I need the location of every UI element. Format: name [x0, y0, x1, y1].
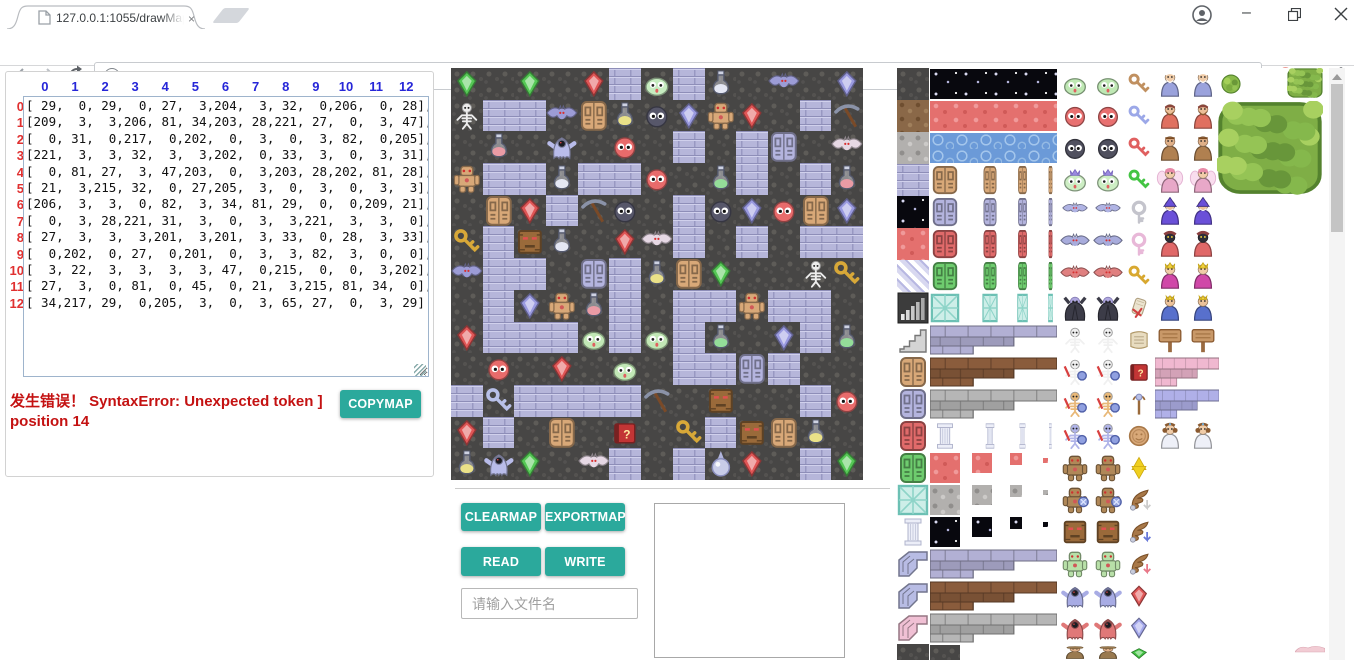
map-tile-golem[interactable] — [451, 163, 483, 195]
map-tile-stone-face[interactable] — [705, 385, 737, 417]
map-tile-dark-ground[interactable] — [546, 258, 578, 290]
tileset-sprite-blob[interactable] — [1093, 133, 1123, 163]
tileset-sprite-bat[interactable] — [1062, 199, 1088, 221]
tileset-sprite-skeleton[interactable] — [1060, 325, 1090, 355]
map-tile-brick-wall[interactable] — [705, 290, 737, 322]
tileset-sprite-slimecrown[interactable] — [1093, 165, 1123, 195]
map-tile-green-gem[interactable] — [514, 68, 546, 100]
tileset-sprite-dark[interactable] — [930, 645, 960, 660]
exportmap-button[interactable]: EXPORTMAP — [545, 503, 625, 531]
tileset-sprite-key[interactable] — [1126, 263, 1152, 289]
map-tile-dark-ground[interactable] — [578, 353, 610, 385]
tileset-sprite-skelarm[interactable] — [1060, 389, 1090, 419]
map-tile-purple-bat[interactable] — [768, 68, 800, 100]
map-tile-dark-ground[interactable] — [514, 417, 546, 449]
tileset-sprite-dwarf[interactable] — [1155, 101, 1185, 131]
map-tile-purple-gem[interactable] — [831, 195, 863, 227]
tileset-sprite-hatguy[interactable] — [1093, 645, 1123, 660]
tileset-sprite-diag[interactable] — [897, 260, 929, 292]
map-tile-wooden-door[interactable] — [483, 195, 515, 227]
tileset-sprite-redcave[interactable] — [930, 101, 1057, 131]
map-tile-wooden-door[interactable] — [768, 417, 800, 449]
map-tile-red-gem[interactable] — [736, 448, 768, 480]
map-tile-green-gem[interactable] — [705, 258, 737, 290]
tileset-sprite-door[interactable] — [930, 229, 960, 259]
tileset-sprite-bat[interactable] — [1060, 261, 1090, 289]
tileset-sprite-gstone[interactable] — [897, 132, 929, 164]
tileset-sprite-starry[interactable] — [1010, 517, 1022, 529]
copymap-button[interactable]: COPYMAP — [340, 390, 421, 418]
map-tile-dark-ground[interactable] — [768, 448, 800, 480]
tab-close-icon[interactable]: × — [188, 12, 195, 26]
map-tile-dark-ground[interactable] — [736, 385, 768, 417]
map-tile-brick-wall[interactable] — [483, 290, 515, 322]
map-tile-dark-ground[interactable] — [514, 353, 546, 385]
map-tile-dark-ground[interactable] — [768, 100, 800, 132]
tileset-sprite-fighter[interactable] — [1155, 133, 1185, 163]
tileset-sprite-gem[interactable] — [1126, 583, 1152, 609]
tileset-sprite-sign[interactable] — [1188, 325, 1218, 355]
map-tile-purple-gem[interactable] — [673, 100, 705, 132]
tileset-sprite-door[interactable] — [897, 356, 929, 388]
map-tile-green-slime[interactable] — [578, 322, 610, 354]
map-tile-brick-wall[interactable] — [800, 163, 832, 195]
tileset-sprite-brick[interactable] — [897, 164, 929, 196]
tileset-sprite-sign[interactable] — [1155, 325, 1185, 355]
tileset-sprite-starry[interactable] — [972, 517, 992, 537]
filename-input[interactable] — [461, 588, 638, 619]
tileset-sprite-wingwall[interactable] — [897, 548, 929, 580]
tileset-sprite-ghost[interactable] — [1093, 613, 1123, 643]
tileset-sprite-treebig[interactable] — [1217, 101, 1323, 195]
map-tile-red-blob[interactable] — [641, 163, 673, 195]
tileset-sprite-dirt[interactable] — [897, 100, 929, 132]
map-tile-brick-wall[interactable] — [483, 226, 515, 258]
map-tile-gold-key[interactable] — [831, 258, 863, 290]
tileset-sprite-golem[interactable] — [1093, 453, 1123, 483]
map-tile-magic-orb[interactable] — [705, 448, 737, 480]
tileset-sprite-prince[interactable] — [1188, 293, 1218, 323]
tileset-sprite-door[interactable] — [1048, 165, 1053, 195]
tileset-sprite-golem[interactable] — [1093, 549, 1123, 579]
map-tile-purple-gem[interactable] — [736, 195, 768, 227]
tileset-sprite-keyring[interactable] — [1126, 231, 1152, 257]
tileset-sprite-redcave[interactable] — [1043, 458, 1048, 463]
tileset-sprite-face[interactable] — [1093, 517, 1123, 547]
tileset-sprite-princess[interactable] — [1188, 421, 1218, 451]
tileset-sprite-doorice[interactable] — [930, 293, 960, 323]
tileset-sprite-fighter[interactable] — [1188, 133, 1218, 163]
map-tile-green-gem[interactable] — [451, 68, 483, 100]
map-tile-skeleton[interactable] — [800, 258, 832, 290]
read-button[interactable]: READ — [461, 547, 541, 576]
textarea-resize-grip[interactable] — [414, 364, 426, 376]
tileset-sprite-fairy[interactable] — [1155, 165, 1185, 195]
tileset-sprite-bars[interactable] — [897, 292, 929, 324]
tileset-sprite-door[interactable] — [930, 197, 960, 227]
tileset-sprite-redcave[interactable] — [930, 453, 960, 483]
tileset-sprite-princess[interactable] — [1155, 421, 1185, 451]
tileset-sprite-gem[interactable] — [1126, 615, 1152, 641]
map-tile-red-gem[interactable] — [451, 322, 483, 354]
map-tile-pink-bat[interactable] — [641, 226, 673, 258]
tileset-sprite-wall[interactable] — [930, 549, 1057, 579]
tileset-sprite-pillar[interactable] — [1048, 421, 1053, 451]
close-icon[interactable] — [1334, 7, 1348, 21]
tileset-sprite-door[interactable] — [897, 420, 929, 452]
tileset-sprite-golem[interactable] — [1060, 549, 1090, 579]
map-tile-dark-ground[interactable] — [768, 385, 800, 417]
tileset-sprite-door[interactable] — [982, 197, 998, 227]
map-tile-gold-key[interactable] — [673, 417, 705, 449]
map-tile-brick-wall[interactable] — [514, 385, 546, 417]
tileset-sprite-hatguy[interactable] — [1060, 645, 1090, 660]
scroll-thumb[interactable] — [1331, 84, 1343, 232]
tileset-sprite-pillar[interactable] — [930, 421, 960, 451]
tileset-sprite-gstone[interactable] — [972, 485, 992, 505]
tileset-sprite-wall[interactable] — [1155, 357, 1219, 387]
map-tile-stone-face[interactable] — [736, 417, 768, 449]
map-tile-yellow-potion[interactable] — [800, 417, 832, 449]
map-tile-purple-gem[interactable] — [831, 68, 863, 100]
tileset-sprite-redcave[interactable] — [897, 228, 929, 260]
map-tile-brick-wall[interactable] — [609, 385, 641, 417]
map-tile-dark-ground[interactable] — [546, 68, 578, 100]
map-tile-brick-wall[interactable] — [673, 290, 705, 322]
map-tile-dark-ground[interactable] — [578, 131, 610, 163]
tileset-sprite-wingwall[interactable] — [897, 580, 929, 612]
tileset-sprite-door[interactable] — [1048, 261, 1053, 291]
map-tile-brick-wall[interactable] — [705, 353, 737, 385]
map-tile-dark-ground[interactable] — [578, 417, 610, 449]
map-tile-dark-ground[interactable] — [451, 195, 483, 227]
map-tile-green-potion[interactable] — [705, 322, 737, 354]
map-tile-silver-door[interactable] — [578, 258, 610, 290]
map-tile-brick-wall[interactable] — [800, 100, 832, 132]
map-tile-brick-wall[interactable] — [768, 290, 800, 322]
map-tile-green-potion[interactable] — [831, 322, 863, 354]
map-tile-brick-wall[interactable] — [609, 448, 641, 480]
tileset-sprite-key[interactable] — [1126, 71, 1152, 97]
tileset-sprite-skelarm[interactable] — [1093, 389, 1123, 419]
map-tile-purple-gem[interactable] — [514, 290, 546, 322]
map-tile-brick-wall[interactable] — [673, 226, 705, 258]
map-tile-dark-ground[interactable] — [546, 448, 578, 480]
tileset-sprite-doorice[interactable] — [1017, 293, 1028, 323]
map-tile-dark-ground[interactable] — [705, 226, 737, 258]
tileset-sprite-wing[interactable] — [1126, 519, 1152, 545]
tileset-sprite-starry[interactable] — [930, 517, 960, 547]
tileset-sprite-gstone[interactable] — [1010, 485, 1022, 497]
map-tile-golem[interactable] — [705, 100, 737, 132]
tileset-sprite-water[interactable] — [930, 133, 1057, 163]
tileset-sprite-elder[interactable] — [1188, 69, 1218, 99]
map-tile-red-blob[interactable] — [609, 131, 641, 163]
tileset-sprite-doorice[interactable] — [982, 293, 998, 323]
map-tile-dark-ground[interactable] — [451, 353, 483, 385]
map-tile-dark-blob[interactable] — [705, 195, 737, 227]
map-tile-yellow-potion[interactable] — [641, 258, 673, 290]
tileset-sprite-wing[interactable] — [1126, 551, 1152, 577]
tileset-sprite-door[interactable] — [930, 165, 960, 195]
map-tile-brick-wall[interactable] — [736, 131, 768, 163]
map-tile-brick-wall[interactable] — [768, 353, 800, 385]
map-tile-brick-wall[interactable] — [514, 163, 546, 195]
map-tile-brick-wall[interactable] — [800, 385, 832, 417]
map-tile-skeleton[interactable] — [451, 100, 483, 132]
tileset-sprite-priest[interactable] — [1188, 229, 1218, 259]
map-tile-dark-ground[interactable] — [768, 226, 800, 258]
map-tile-question-book[interactable]: ? — [609, 417, 641, 449]
map-tile-dark-ground[interactable] — [483, 68, 515, 100]
map-tile-dark-ground[interactable] — [673, 385, 705, 417]
tileset-sprite-wall[interactable] — [1155, 389, 1219, 419]
tileset-sprite-golemarm[interactable] — [1060, 485, 1090, 515]
map-tile-brick-wall[interactable] — [483, 417, 515, 449]
tileset-sprite-skeleton[interactable] — [1093, 325, 1123, 355]
map-tile-green-slime[interactable] — [609, 353, 641, 385]
tileset-sprite-stairs[interactable] — [897, 324, 929, 356]
map-tile-brick-wall[interactable] — [578, 385, 610, 417]
tileset-sprite-pillar[interactable] — [897, 516, 929, 548]
map-tile-brick-wall[interactable] — [800, 226, 832, 258]
map-tile-dark-ground[interactable] — [800, 353, 832, 385]
tileset-sprite-coin[interactable] — [1126, 423, 1152, 449]
map-tile-brick-wall[interactable] — [483, 100, 515, 132]
map-tile-brick-wall[interactable] — [736, 226, 768, 258]
tileset-sprite-treebig[interactable] — [1287, 68, 1323, 98]
map-tile-green-gem[interactable] — [831, 448, 863, 480]
tileset-sprite-key[interactable] — [1126, 135, 1152, 161]
map-tile-brick-wall[interactable] — [609, 290, 641, 322]
map-tile-purple-gem[interactable] — [768, 322, 800, 354]
scroll-up-arrow[interactable] — [1332, 74, 1342, 80]
map-tile-dark-blob[interactable] — [609, 195, 641, 227]
tileset-sprite-scroll[interactable] — [1126, 295, 1152, 321]
tileset-sprite-ghost[interactable] — [1060, 613, 1090, 643]
tileset-sprite-scrollopen[interactable] — [1126, 327, 1152, 353]
browser-tab[interactable]: 127.0.0.1:1055/drawMapGUI.html × — [6, 5, 206, 29]
tileset-sprite-elder[interactable] — [1155, 69, 1185, 99]
map-tile-pickaxe[interactable] — [641, 385, 673, 417]
tileset-sprite-wizard[interactable] — [1155, 197, 1185, 227]
map-tile-ghost[interactable] — [546, 131, 578, 163]
tileset-sprite-door[interactable] — [1017, 229, 1028, 259]
tileset-sprite-wizard[interactable] — [1188, 197, 1218, 227]
map-tile-red-potion[interactable] — [831, 163, 863, 195]
map-tile-brick-wall[interactable] — [673, 322, 705, 354]
map-tile-silver-door[interactable] — [768, 131, 800, 163]
map-tile-dark-ground[interactable] — [451, 131, 483, 163]
map-tile-wooden-door[interactable] — [578, 100, 610, 132]
map-tile-silver-key[interactable] — [483, 385, 515, 417]
map-tile-dark-ground[interactable] — [673, 163, 705, 195]
map-tile-brick-wall[interactable] — [609, 258, 641, 290]
map-tile-brick-wall[interactable] — [546, 195, 578, 227]
map-tile-dark-ground[interactable] — [641, 417, 673, 449]
map-tile-dark-ground[interactable] — [768, 163, 800, 195]
map-tile-dark-ground[interactable] — [800, 131, 832, 163]
map-tile-red-potion[interactable] — [578, 290, 610, 322]
tileset-sprite-ghost[interactable] — [1060, 581, 1090, 611]
tileset-sprite-door[interactable] — [982, 229, 998, 259]
map-tile-red-gem[interactable] — [514, 195, 546, 227]
tileset-sprite-doorice[interactable] — [897, 484, 929, 516]
write-button[interactable]: WRITE — [545, 547, 625, 576]
map-tile-brick-wall[interactable] — [673, 448, 705, 480]
map-tile-brick-wall[interactable] — [578, 163, 610, 195]
map-tile-yellow-potion[interactable] — [451, 448, 483, 480]
map-tile-dark-ground[interactable] — [641, 448, 673, 480]
tileset-sprite-dark[interactable] — [897, 644, 929, 660]
tileset-sprite-vampire[interactable] — [1093, 293, 1123, 323]
tileset-sprite-wall[interactable] — [930, 389, 1057, 419]
tileset-sprite-golem[interactable] — [1060, 453, 1090, 483]
tileset-sprite-door[interactable] — [1017, 197, 1028, 227]
map-tile-dark-ground[interactable] — [831, 417, 863, 449]
tileset-sprite-door[interactable] — [897, 452, 929, 484]
map-tile-green-slime[interactable] — [641, 322, 673, 354]
map-tile-brick-wall[interactable] — [546, 385, 578, 417]
minimize-icon[interactable]: – — [1242, 4, 1251, 22]
tileset-sprite-starry[interactable] — [897, 196, 929, 228]
tileset-sprite-key[interactable] — [1126, 103, 1152, 129]
tileset-sprite-wall[interactable] — [930, 581, 1057, 611]
tileset-sprite-skelarm[interactable] — [1093, 421, 1123, 451]
map-tile-silver-potion[interactable] — [546, 163, 578, 195]
map-tile-dark-blob[interactable] — [641, 100, 673, 132]
map-tile-purple-bat[interactable] — [451, 258, 483, 290]
map-tile-wooden-door[interactable] — [546, 417, 578, 449]
tileset-sprite-doorice[interactable] — [1048, 293, 1053, 323]
map-tile-brick-wall[interactable] — [514, 100, 546, 132]
tileset-sprite-door[interactable] — [930, 261, 960, 291]
map-tile-brick-wall[interactable] — [609, 322, 641, 354]
tileset-sprite-gem[interactable] — [1126, 647, 1152, 660]
map-tile-dark-ground[interactable] — [641, 353, 673, 385]
tileset-sprite-ghost[interactable] — [1093, 581, 1123, 611]
tileset-sprite-key[interactable] — [1126, 167, 1152, 193]
tileset-sprite-staff[interactable] — [1126, 391, 1152, 417]
map-tile-brick-wall[interactable] — [673, 353, 705, 385]
tileset-sprite-door[interactable] — [897, 388, 929, 420]
tileset-sprite-wing[interactable] — [1126, 487, 1152, 513]
map-tile-green-potion[interactable] — [705, 163, 737, 195]
map-tile-dark-ground[interactable] — [641, 195, 673, 227]
tileset-sprite-fairy[interactable] — [1188, 165, 1218, 195]
tileset-sprite-blob[interactable] — [1060, 101, 1090, 131]
map-tile-dark-ground[interactable] — [705, 131, 737, 163]
map-tile-red-gem[interactable] — [736, 100, 768, 132]
tileset-sprite-starry[interactable] — [930, 69, 1057, 99]
map-tile-brick-wall[interactable] — [800, 322, 832, 354]
map-tile-dark-ground[interactable] — [514, 131, 546, 163]
tileset-sprite-blob[interactable] — [1060, 133, 1090, 163]
map-tile-brick-wall[interactable] — [800, 290, 832, 322]
map-tile-dark-ground[interactable] — [800, 68, 832, 100]
clearmap-button[interactable]: CLEARMAP — [461, 503, 541, 531]
map-tile-red-gem[interactable] — [451, 417, 483, 449]
map-tile-brick-wall[interactable] — [483, 322, 515, 354]
tileset-palette[interactable]: ? — [897, 68, 1329, 660]
restore-icon[interactable] — [1288, 8, 1301, 21]
tileset-sprite-book[interactable]: ? — [1126, 359, 1152, 385]
map-tile-brick-wall[interactable] — [546, 322, 578, 354]
map-tile-silver-potion[interactable] — [705, 68, 737, 100]
tileset-sprite-wall[interactable] — [930, 357, 1057, 387]
map-tile-pickaxe[interactable] — [831, 100, 863, 132]
map-tile-pickaxe[interactable] — [578, 195, 610, 227]
map-tile-brick-wall[interactable] — [673, 68, 705, 100]
tileset-sprite-redcave[interactable] — [1010, 453, 1022, 465]
map-tile-golem[interactable] — [736, 290, 768, 322]
tileset-sprite-pillar[interactable] — [1017, 421, 1028, 451]
tileset-sprite-priest[interactable] — [1155, 229, 1185, 259]
map-tile-dark-ground[interactable] — [768, 258, 800, 290]
tileset-sprite-skelarm[interactable] — [1093, 357, 1123, 387]
map-tile-red-potion[interactable] — [483, 131, 515, 163]
tileset-sprite-slimecrown[interactable] — [1060, 165, 1090, 195]
tileset-sprite-door[interactable] — [1017, 261, 1028, 291]
map-tile-stone-face[interactable] — [514, 226, 546, 258]
tileset-sprite-door[interactable] — [1048, 229, 1053, 259]
tileset-sprite-redcave[interactable] — [972, 453, 992, 473]
tileset-sprite-bat[interactable] — [1060, 229, 1090, 257]
map-tile-brick-wall[interactable] — [514, 322, 546, 354]
tileset-sprite-vampire[interactable] — [1060, 293, 1090, 323]
map-tile-brick-wall[interactable] — [736, 163, 768, 195]
map-tile-dark-ground[interactable] — [641, 131, 673, 163]
tileset-sprite-skelarm[interactable] — [1060, 357, 1090, 387]
map-tile-brick-wall[interactable] — [609, 68, 641, 100]
map-tile-brick-wall[interactable] — [451, 385, 483, 417]
map-tile-dark-ground[interactable] — [831, 290, 863, 322]
map-tile-dark-ground[interactable] — [736, 68, 768, 100]
map-tile-red-blob[interactable] — [768, 195, 800, 227]
map-tile-green-gem[interactable] — [514, 448, 546, 480]
new-tab-button[interactable] — [212, 8, 250, 23]
tileset-sprite-bat[interactable] — [1095, 199, 1121, 221]
map-tile-ghost[interactable] — [483, 448, 515, 480]
tileset-sprite-prince[interactable] — [1155, 293, 1185, 323]
map-tile-red-gem[interactable] — [578, 68, 610, 100]
tileset-sprite-wall[interactable] — [930, 613, 1057, 643]
map-tile-brick-wall[interactable] — [514, 258, 546, 290]
tileset-sprite-dark[interactable] — [897, 68, 929, 100]
tileset-sprite-door[interactable] — [982, 165, 998, 195]
tileset-sprite-gstone[interactable] — [930, 485, 960, 515]
tileset-sprite-gstone[interactable] — [1043, 490, 1048, 495]
tileset-sprite-dwarf[interactable] — [1188, 101, 1218, 131]
map-tile-dark-ground[interactable] — [831, 353, 863, 385]
map-tile-yellow-potion[interactable] — [609, 100, 641, 132]
map-tile-brick-wall[interactable] — [705, 417, 737, 449]
map-tile-red-blob[interactable] — [483, 353, 515, 385]
map-tile-brick-wall[interactable] — [483, 163, 515, 195]
tileset-sprite-pillar[interactable] — [982, 421, 998, 451]
map-tile-red-gem[interactable] — [609, 226, 641, 258]
map-canvas[interactable]: ? — [451, 68, 863, 480]
tileset-sprite-pinkblob[interactable] — [1295, 644, 1325, 660]
map-tile-brick-wall[interactable] — [673, 131, 705, 163]
map-tile-brick-wall[interactable] — [609, 163, 641, 195]
matrix-textarea[interactable] — [23, 96, 429, 377]
map-tile-dark-ground[interactable] — [451, 290, 483, 322]
tileset-sprite-keyring[interactable] — [1126, 199, 1152, 225]
map-tile-dark-ground[interactable] — [641, 290, 673, 322]
map-tile-silver-door[interactable] — [736, 353, 768, 385]
tileset-sprite-door[interactable] — [1017, 165, 1028, 195]
